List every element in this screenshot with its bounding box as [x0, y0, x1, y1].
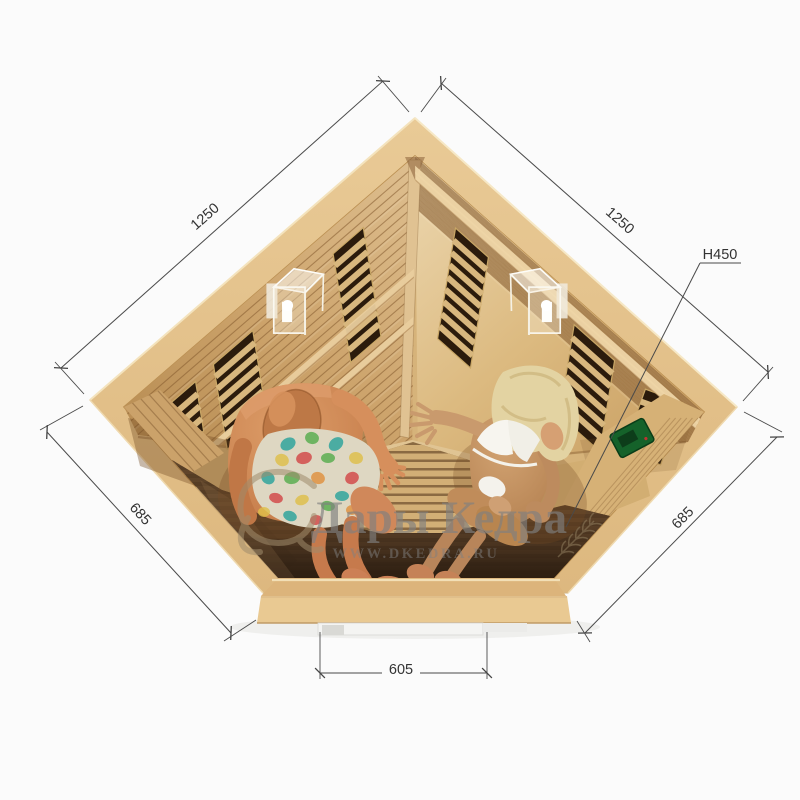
svg-text:H450: H450 [703, 247, 738, 263]
svg-text:Дары Кедра: Дары Кедра [311, 492, 567, 544]
svg-text:WWW.DKEDRA.RU: WWW.DKEDRA.RU [333, 546, 500, 562]
svg-text:605: 605 [389, 662, 413, 678]
